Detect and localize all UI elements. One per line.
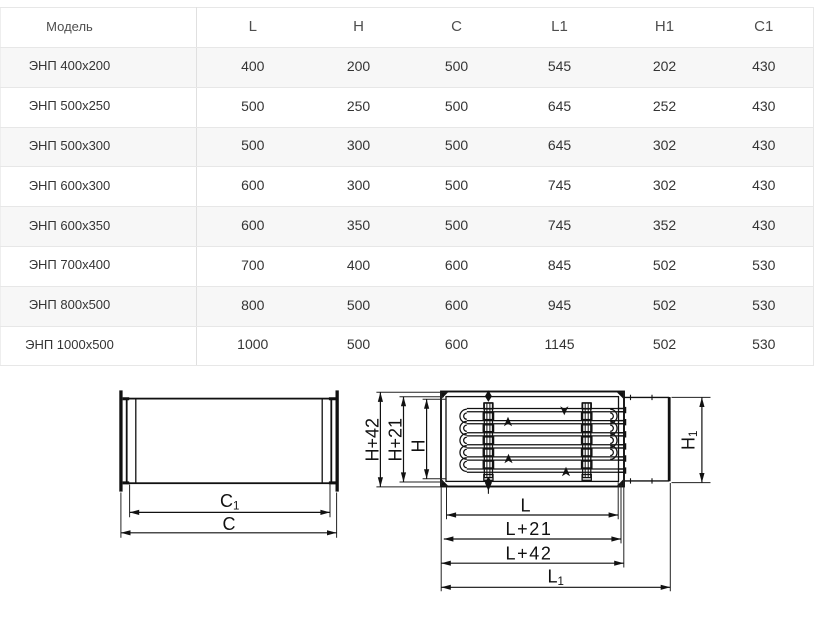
svg-text:L+42: L+42 (506, 544, 553, 564)
svg-text:C1: C1 (220, 491, 239, 513)
svg-text:H: H (409, 440, 429, 453)
svg-text:H1: H1 (679, 431, 701, 450)
svg-text:L1: L1 (548, 566, 564, 588)
svg-text:C: C (223, 514, 236, 534)
svg-text:H+21: H+21 (386, 418, 406, 462)
svg-text:H+42: H+42 (363, 418, 383, 462)
svg-text:L: L (521, 495, 531, 515)
svg-text:L+21: L+21 (506, 519, 553, 539)
